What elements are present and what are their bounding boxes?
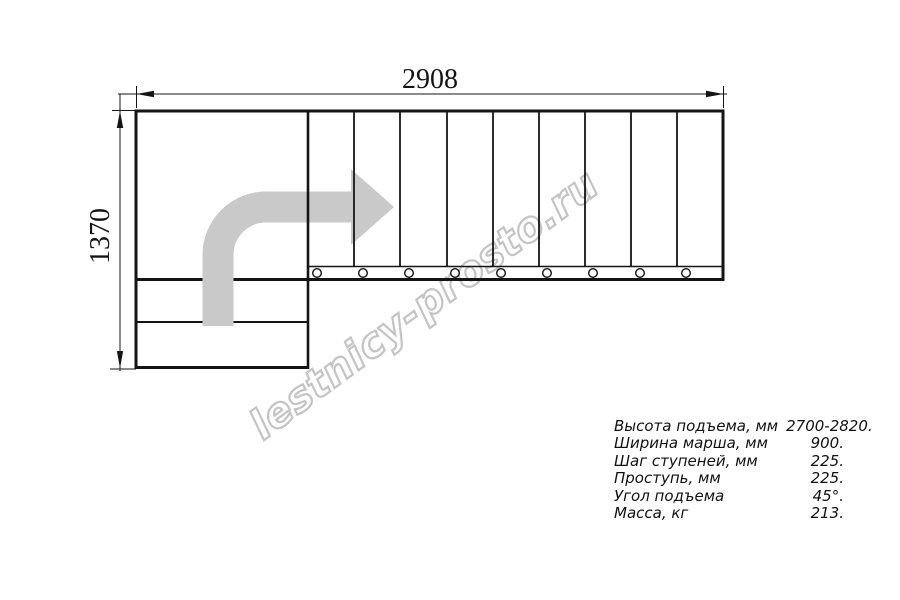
spec-value: 225. [758, 453, 844, 470]
bolt-circle [405, 269, 414, 278]
spec-label: Угол подъема [614, 488, 724, 505]
dim-arrow-left [137, 91, 155, 97]
spec-label: Масса, кг [614, 505, 688, 522]
direction-arrow-head [351, 169, 394, 245]
spec-value: 225. [721, 470, 844, 487]
height-dimension-label: 1370 [85, 208, 116, 264]
spec-label: Ширина марша, мм [614, 435, 768, 452]
spec-label: Высота подъема, мм [614, 418, 778, 435]
spec-row-angle: Угол подъема 45°. [614, 488, 844, 505]
spec-value: 2700-2820. [778, 418, 873, 435]
bolt-circle [589, 269, 598, 278]
direction-arrow-icon [218, 169, 394, 326]
spec-row-mass: Масса, кг 213. [614, 505, 844, 522]
spec-label: Шаг ступеней, мм [614, 453, 758, 470]
spec-row-step-pitch: Шаг ступеней, мм 225. [614, 453, 844, 470]
bolt-circles [313, 269, 691, 278]
spec-row-rise-height: Высота подъема, мм 2700-2820. [614, 418, 844, 435]
spec-value: 45°. [724, 488, 844, 505]
spec-value: 213. [688, 505, 844, 522]
bolt-circle [359, 269, 368, 278]
bolt-circle [451, 269, 460, 278]
width-dimension-label: 2908 [402, 64, 458, 95]
spec-row-tread: Проступь, мм 225. [614, 470, 844, 487]
spec-value: 900. [768, 435, 844, 452]
bolt-circle [543, 269, 552, 278]
spec-label: Проступь, мм [614, 470, 721, 487]
dim-arrow-up [117, 111, 123, 128]
bolt-circle [682, 269, 691, 278]
bolt-circle [313, 269, 322, 278]
bolt-circle [636, 269, 645, 278]
stair-drawing-page: lestnicy-prosto.ru [0, 0, 900, 600]
bolt-circle [497, 269, 506, 278]
dim-arrow-right [706, 91, 724, 97]
spec-table: Высота подъема, мм 2700-2820. Ширина мар… [614, 418, 844, 522]
spec-row-flight-width: Ширина марша, мм 900. [614, 435, 844, 452]
dim-arrow-down [117, 351, 123, 368]
